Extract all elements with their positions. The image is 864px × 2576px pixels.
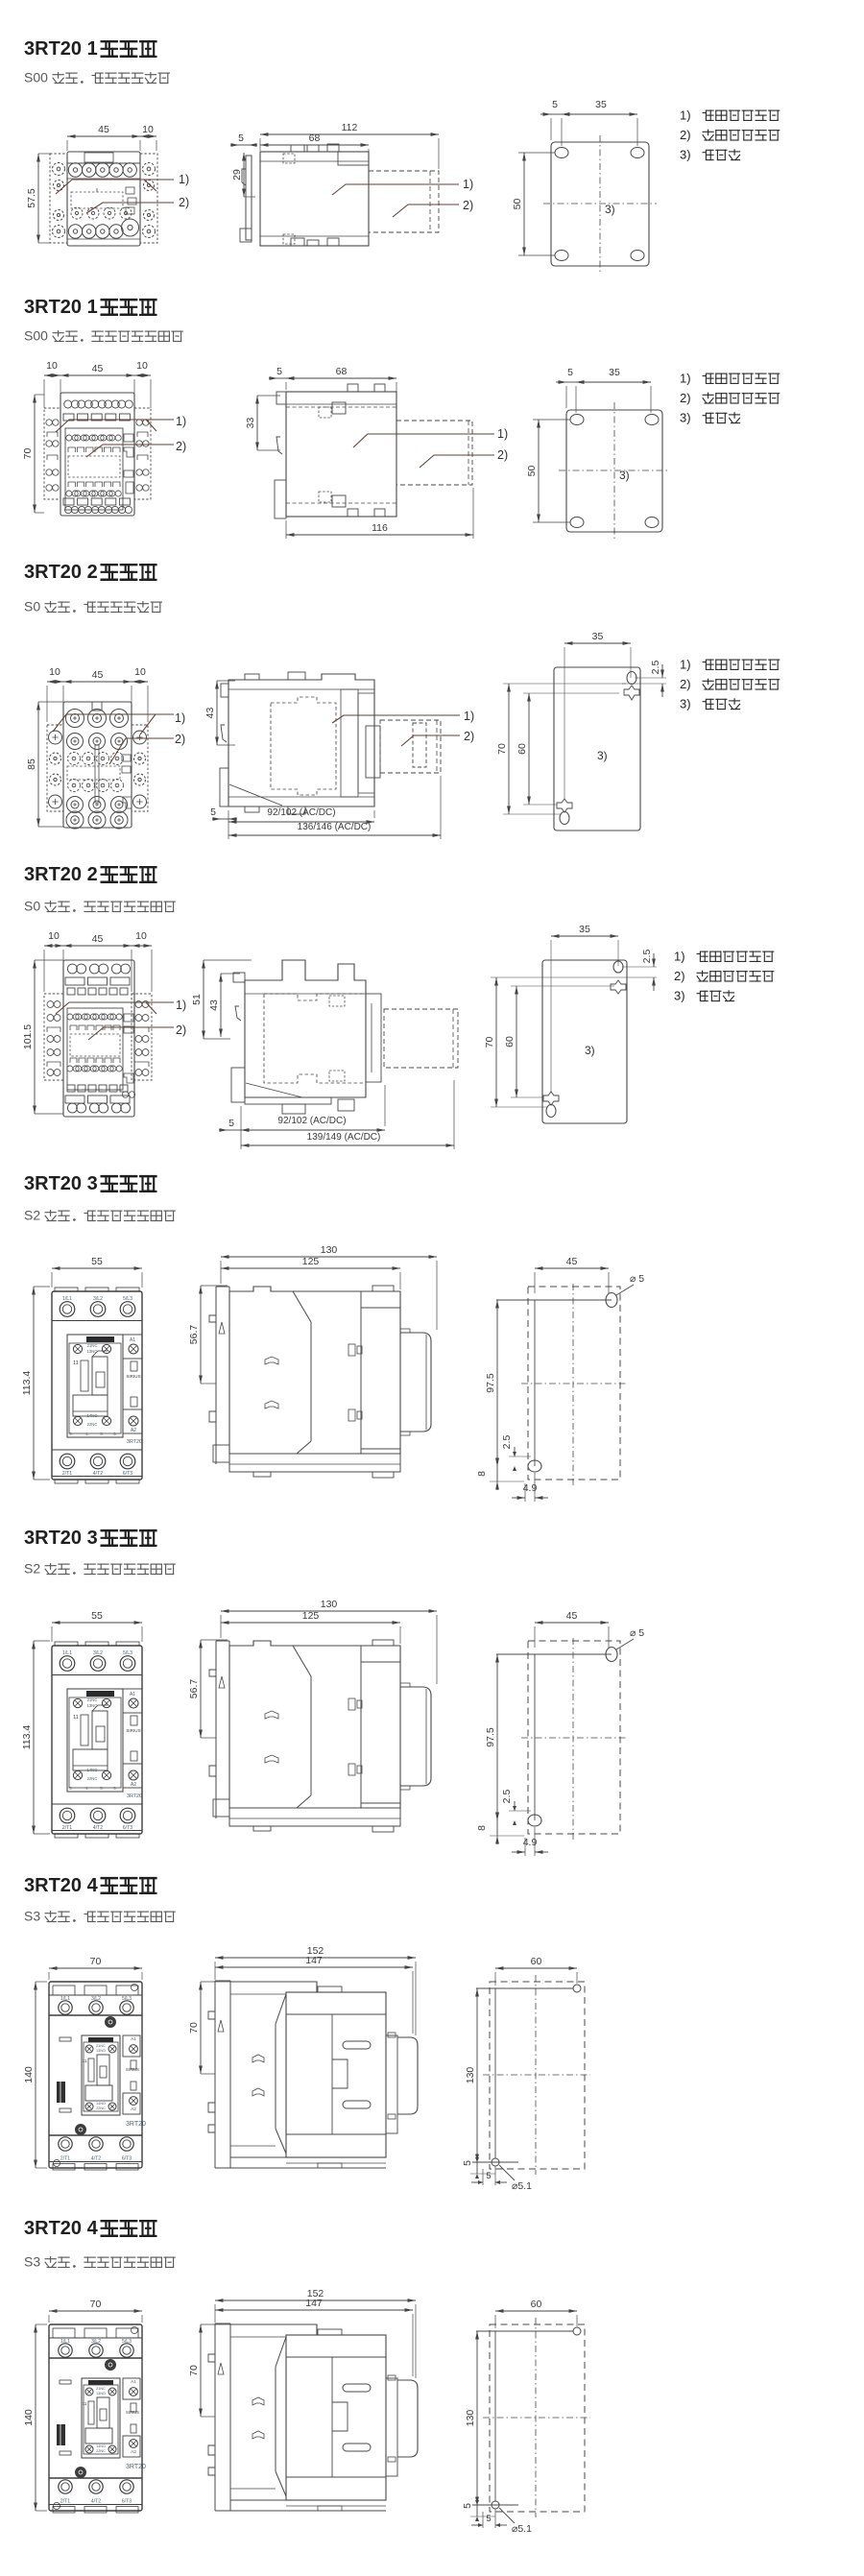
svg-text:6.: 6. bbox=[113, 1786, 117, 1791]
svg-text:1): 1) bbox=[674, 950, 685, 964]
svg-text:2/T1: 2/T1 bbox=[60, 2156, 70, 2162]
svg-text:13NO: 13NO bbox=[87, 1703, 99, 1708]
svg-text:2): 2) bbox=[680, 677, 691, 691]
svg-text:5: 5 bbox=[228, 1118, 234, 1129]
svg-text:3RT20 4: 3RT20 4 bbox=[24, 1875, 99, 1896]
svg-text:8: 8 bbox=[476, 1471, 488, 1477]
svg-text:4.9: 4.9 bbox=[523, 1482, 538, 1494]
svg-text:51: 51 bbox=[191, 994, 203, 1005]
svg-text:2): 2) bbox=[176, 440, 186, 453]
svg-text:68: 68 bbox=[336, 366, 348, 377]
svg-text:45: 45 bbox=[566, 1610, 578, 1622]
svg-text:45: 45 bbox=[92, 363, 104, 374]
svg-text:116: 116 bbox=[372, 522, 388, 534]
svg-text:6.: 6. bbox=[113, 1432, 117, 1436]
svg-text:3RT20: 3RT20 bbox=[127, 1439, 142, 1445]
svg-text:A2: A2 bbox=[131, 2449, 136, 2455]
svg-text:68: 68 bbox=[309, 132, 321, 144]
svg-text:33: 33 bbox=[245, 418, 256, 429]
svg-text:1): 1) bbox=[497, 427, 508, 441]
svg-text:A1: A1 bbox=[131, 2379, 136, 2385]
svg-text:2/T1: 2/T1 bbox=[60, 2499, 70, 2505]
svg-text:35: 35 bbox=[595, 99, 607, 110]
svg-text:125: 125 bbox=[302, 1610, 320, 1622]
svg-text:2): 2) bbox=[175, 733, 185, 746]
svg-text:1): 1) bbox=[176, 415, 186, 428]
svg-text:2.5: 2.5 bbox=[501, 1790, 513, 1804]
svg-text:70: 70 bbox=[22, 448, 34, 460]
svg-text:70: 70 bbox=[496, 743, 508, 755]
svg-text:1): 1) bbox=[680, 108, 691, 123]
svg-text:70: 70 bbox=[188, 2365, 200, 2376]
svg-text:13NO: 13NO bbox=[96, 2392, 106, 2395]
svg-text:10: 10 bbox=[135, 930, 147, 942]
svg-text:3): 3) bbox=[585, 1044, 595, 1057]
svg-text:2.5: 2.5 bbox=[501, 1435, 513, 1450]
svg-text:112: 112 bbox=[342, 122, 358, 133]
svg-text:5: 5 bbox=[276, 366, 282, 377]
svg-text:21NC: 21NC bbox=[96, 2387, 106, 2391]
svg-text:5/L3: 5/L3 bbox=[123, 1650, 132, 1656]
svg-text:10: 10 bbox=[48, 930, 60, 942]
svg-text:14NO: 14NO bbox=[96, 2102, 106, 2106]
svg-text:4.: 4. bbox=[85, 1432, 89, 1436]
svg-text:125: 125 bbox=[302, 1256, 320, 1267]
svg-text:5: 5 bbox=[567, 367, 573, 378]
svg-text:70: 70 bbox=[188, 2022, 200, 2034]
svg-text:2): 2) bbox=[464, 730, 474, 743]
svg-text:130: 130 bbox=[321, 1244, 338, 1256]
svg-text:2): 2) bbox=[497, 448, 508, 462]
svg-text:1): 1) bbox=[175, 711, 185, 725]
svg-text:10: 10 bbox=[142, 124, 154, 135]
svg-text:57.5: 57.5 bbox=[26, 188, 37, 208]
svg-text:45: 45 bbox=[98, 124, 109, 135]
svg-text:130: 130 bbox=[465, 2067, 476, 2084]
svg-text:⌀ 5: ⌀ 5 bbox=[630, 1273, 644, 1285]
svg-text:55: 55 bbox=[91, 1256, 103, 1267]
svg-text:1): 1) bbox=[680, 658, 691, 672]
svg-text:140: 140 bbox=[23, 2409, 35, 2426]
svg-text:43: 43 bbox=[204, 708, 216, 719]
svg-text:1): 1) bbox=[464, 710, 474, 723]
svg-text:S0: S0 bbox=[24, 599, 40, 614]
svg-text:2): 2) bbox=[680, 391, 691, 405]
svg-text:14NO: 14NO bbox=[87, 1768, 99, 1772]
svg-text:SIRIUS: SIRIUS bbox=[126, 2067, 139, 2072]
svg-text:60: 60 bbox=[531, 2299, 542, 2310]
svg-text:10: 10 bbox=[49, 666, 60, 678]
svg-text:10: 10 bbox=[46, 360, 58, 372]
svg-text:3): 3) bbox=[680, 148, 691, 162]
svg-text:A1: A1 bbox=[130, 1337, 135, 1343]
svg-text:SIRIUS: SIRIUS bbox=[126, 1374, 140, 1379]
svg-text:3RT20 2: 3RT20 2 bbox=[24, 864, 98, 885]
svg-text:S00: S00 bbox=[24, 70, 48, 85]
svg-text:6/T3: 6/T3 bbox=[122, 2499, 132, 2505]
svg-text:1/L1: 1/L1 bbox=[62, 1650, 72, 1656]
svg-text:3): 3) bbox=[680, 697, 691, 711]
svg-text:A2: A2 bbox=[131, 1782, 136, 1788]
svg-text:4.: 4. bbox=[85, 1786, 89, 1791]
svg-text:2.5: 2.5 bbox=[650, 661, 661, 675]
svg-text:21NC: 21NC bbox=[87, 1343, 98, 1348]
svg-text:3): 3) bbox=[597, 749, 608, 762]
svg-text:5.: 5. bbox=[100, 1432, 104, 1436]
svg-text:3RT20: 3RT20 bbox=[127, 1794, 142, 1799]
svg-text:5: 5 bbox=[486, 2514, 491, 2524]
svg-text:SIRIUS: SIRIUS bbox=[126, 1728, 140, 1733]
svg-text:97.5: 97.5 bbox=[485, 1373, 496, 1393]
svg-text:147: 147 bbox=[305, 1955, 323, 1966]
svg-text:4/T2: 4/T2 bbox=[91, 2499, 101, 2505]
svg-text:5/L3: 5/L3 bbox=[123, 1296, 132, 1302]
svg-text:11: 11 bbox=[83, 2401, 87, 2407]
svg-text:10: 10 bbox=[134, 666, 146, 678]
svg-text:S2: S2 bbox=[24, 1561, 40, 1577]
svg-text:⌀5.1: ⌀5.1 bbox=[512, 2180, 532, 2192]
svg-text:3RT20 4: 3RT20 4 bbox=[24, 2218, 99, 2239]
svg-text:3RT20 3: 3RT20 3 bbox=[24, 1528, 98, 1549]
svg-text:70: 70 bbox=[90, 2299, 102, 2310]
svg-text:50: 50 bbox=[512, 199, 523, 210]
svg-text:⌀ 5: ⌀ 5 bbox=[630, 1627, 644, 1639]
svg-text:45: 45 bbox=[92, 669, 104, 681]
svg-text:14NO: 14NO bbox=[87, 1413, 99, 1418]
svg-text:1): 1) bbox=[176, 999, 186, 1012]
svg-text:60: 60 bbox=[504, 1036, 516, 1047]
svg-text:5: 5 bbox=[552, 99, 558, 110]
svg-text:21NC: 21NC bbox=[96, 2044, 106, 2048]
svg-text:A2: A2 bbox=[131, 2107, 136, 2112]
svg-text:22NC: 22NC bbox=[96, 2107, 106, 2110]
svg-text:3RT20 1: 3RT20 1 bbox=[24, 297, 98, 318]
svg-text:13NO: 13NO bbox=[87, 1349, 99, 1354]
svg-text:A1: A1 bbox=[131, 2036, 136, 2042]
svg-text:11: 11 bbox=[83, 2058, 87, 2064]
svg-text:11: 11 bbox=[73, 1715, 79, 1721]
svg-text:3RT20 2: 3RT20 2 bbox=[24, 562, 98, 583]
svg-text:136/146 (AC/DC): 136/146 (AC/DC) bbox=[298, 822, 372, 832]
svg-text:13NO: 13NO bbox=[96, 2049, 106, 2053]
svg-text:1/L1: 1/L1 bbox=[62, 1296, 72, 1302]
svg-text:S2: S2 bbox=[24, 1208, 40, 1223]
svg-text:35: 35 bbox=[609, 367, 620, 378]
svg-text:SIRIUS: SIRIUS bbox=[126, 2410, 139, 2415]
svg-text:14NO: 14NO bbox=[96, 2444, 106, 2448]
svg-text:10: 10 bbox=[136, 360, 148, 372]
svg-text:2): 2) bbox=[176, 1023, 186, 1037]
svg-text:S3: S3 bbox=[24, 1909, 40, 1924]
svg-text:3RT20 3: 3RT20 3 bbox=[24, 1173, 98, 1194]
svg-text:3/L2: 3/L2 bbox=[93, 1650, 103, 1656]
svg-text:5: 5 bbox=[210, 807, 216, 818]
svg-text:92/102 (AC/DC): 92/102 (AC/DC) bbox=[267, 807, 335, 818]
svg-text:11: 11 bbox=[73, 1360, 79, 1366]
svg-text:3): 3) bbox=[680, 411, 691, 425]
svg-text:56.7: 56.7 bbox=[188, 1679, 200, 1699]
svg-text:45: 45 bbox=[92, 933, 104, 945]
svg-text:35: 35 bbox=[592, 631, 604, 642]
svg-text:4.9: 4.9 bbox=[523, 1837, 538, 1848]
svg-text:5.: 5. bbox=[100, 1786, 104, 1791]
svg-text:1): 1) bbox=[463, 178, 473, 191]
svg-text:6/T3: 6/T3 bbox=[122, 2156, 132, 2162]
svg-text:2.5: 2.5 bbox=[641, 950, 653, 964]
svg-text:22NC: 22NC bbox=[96, 2449, 106, 2453]
svg-text:3RT20: 3RT20 bbox=[126, 2121, 146, 2128]
svg-text:⌀5.1: ⌀5.1 bbox=[512, 2523, 532, 2535]
svg-text:21NC: 21NC bbox=[87, 1697, 98, 1702]
svg-text:50: 50 bbox=[526, 466, 538, 477]
svg-text:130: 130 bbox=[465, 2410, 476, 2427]
svg-text:60: 60 bbox=[531, 1956, 542, 1967]
svg-text:8: 8 bbox=[476, 1825, 488, 1831]
svg-text:22NC: 22NC bbox=[87, 1776, 98, 1781]
svg-text:35: 35 bbox=[579, 924, 590, 935]
svg-text:97.5: 97.5 bbox=[485, 1727, 496, 1747]
svg-text:1): 1) bbox=[680, 372, 691, 386]
svg-text:S0: S0 bbox=[24, 899, 40, 914]
svg-text:3): 3) bbox=[674, 989, 685, 1003]
svg-text:29: 29 bbox=[231, 169, 243, 181]
svg-text:1): 1) bbox=[179, 173, 189, 186]
svg-text:5: 5 bbox=[462, 2160, 473, 2166]
svg-text:3RT20 1: 3RT20 1 bbox=[24, 38, 98, 60]
svg-text:92/102 (AC/DC): 92/102 (AC/DC) bbox=[277, 1116, 346, 1126]
svg-text:2): 2) bbox=[179, 196, 189, 209]
svg-text:147: 147 bbox=[305, 2298, 323, 2309]
svg-text:2): 2) bbox=[680, 128, 691, 142]
svg-text:A2: A2 bbox=[131, 1428, 136, 1433]
svg-text:56.7: 56.7 bbox=[188, 1325, 200, 1345]
svg-text:2): 2) bbox=[463, 199, 473, 212]
svg-text:55: 55 bbox=[91, 1610, 103, 1622]
svg-text:101.5: 101.5 bbox=[22, 1024, 34, 1049]
svg-text:43: 43 bbox=[208, 999, 220, 1011]
svg-text:60: 60 bbox=[516, 743, 528, 755]
svg-text:5: 5 bbox=[462, 2503, 473, 2509]
svg-text:22NC: 22NC bbox=[87, 1422, 98, 1427]
svg-text:113.4: 113.4 bbox=[21, 1725, 33, 1750]
svg-text:139/149 (AC/DC): 139/149 (AC/DC) bbox=[307, 1132, 381, 1143]
svg-text:3.: 3. bbox=[69, 1432, 73, 1436]
svg-text:5: 5 bbox=[238, 132, 244, 144]
svg-text:70: 70 bbox=[484, 1037, 495, 1048]
svg-text:3): 3) bbox=[605, 203, 615, 216]
svg-text:3): 3) bbox=[619, 469, 630, 482]
svg-text:2): 2) bbox=[674, 969, 685, 983]
svg-text:140: 140 bbox=[23, 2066, 35, 2083]
svg-text:4/T2: 4/T2 bbox=[91, 2156, 101, 2162]
svg-text:3.: 3. bbox=[69, 1786, 73, 1791]
svg-text:70: 70 bbox=[90, 1956, 102, 1967]
svg-text:A1: A1 bbox=[130, 1692, 135, 1697]
svg-text:3/L2: 3/L2 bbox=[93, 1296, 103, 1302]
svg-text:113.4: 113.4 bbox=[21, 1371, 33, 1396]
svg-text:5: 5 bbox=[486, 2171, 491, 2181]
svg-text:85: 85 bbox=[26, 758, 37, 770]
svg-text:130: 130 bbox=[321, 1599, 338, 1610]
svg-text:3RT20: 3RT20 bbox=[126, 2464, 146, 2470]
svg-text:S00: S00 bbox=[24, 328, 48, 344]
svg-text:S3: S3 bbox=[24, 2254, 40, 2270]
svg-text:45: 45 bbox=[566, 1256, 578, 1267]
